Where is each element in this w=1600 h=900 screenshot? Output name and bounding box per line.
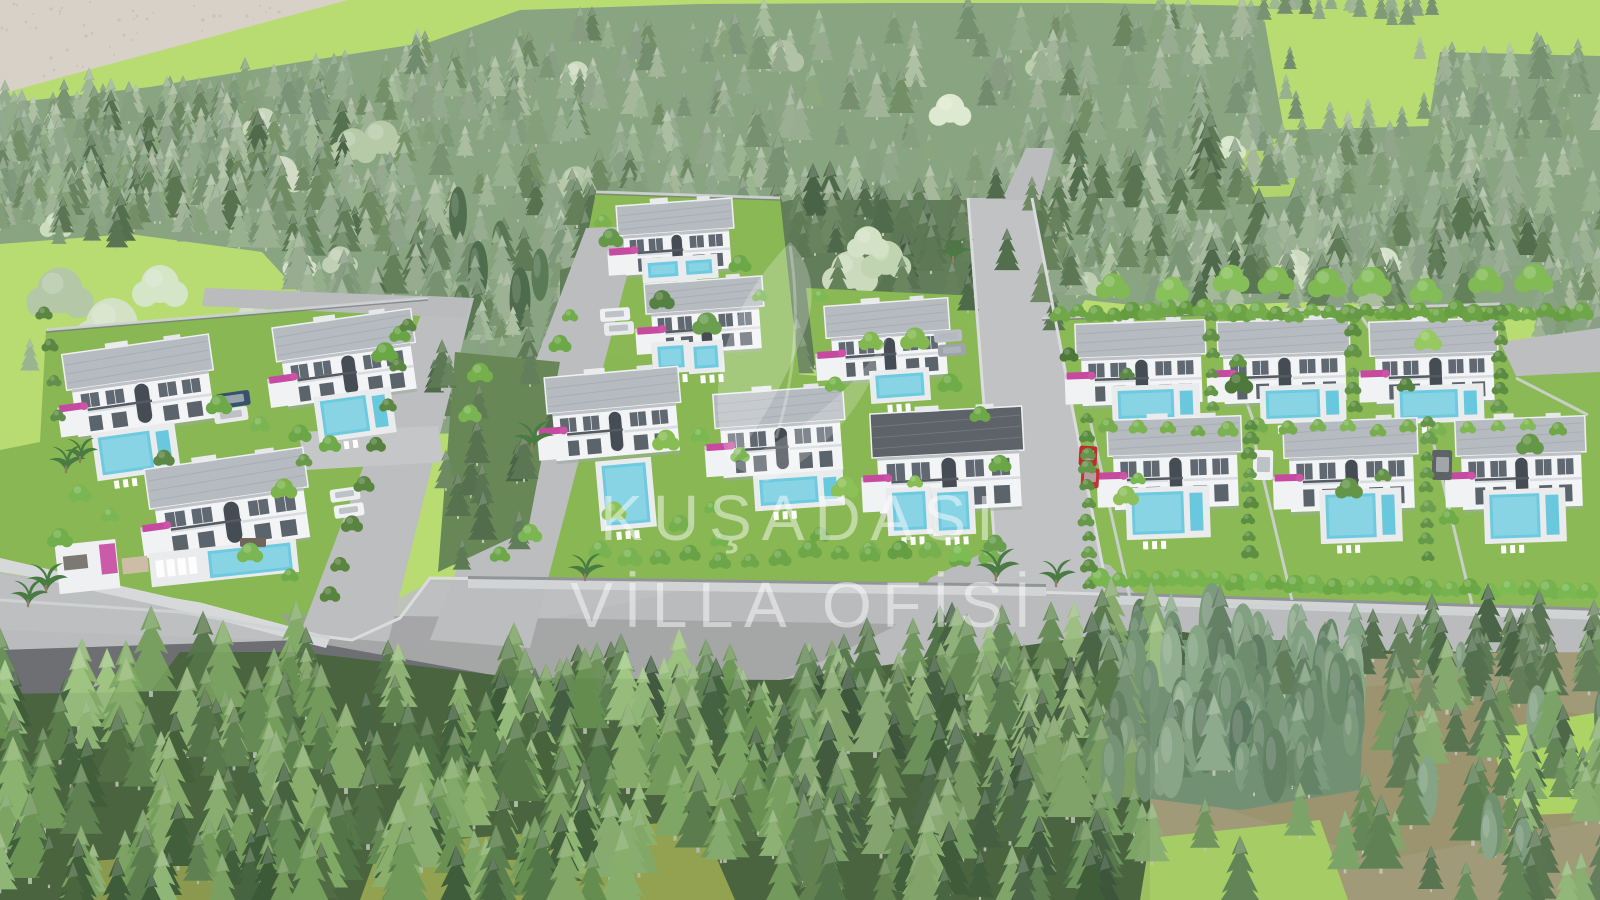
svg-text:KUŞADASI: KUŞADASI — [600, 482, 1004, 554]
svg-text:VİLLA OFİSİ: VİLLA OFİSİ — [570, 569, 1041, 641]
